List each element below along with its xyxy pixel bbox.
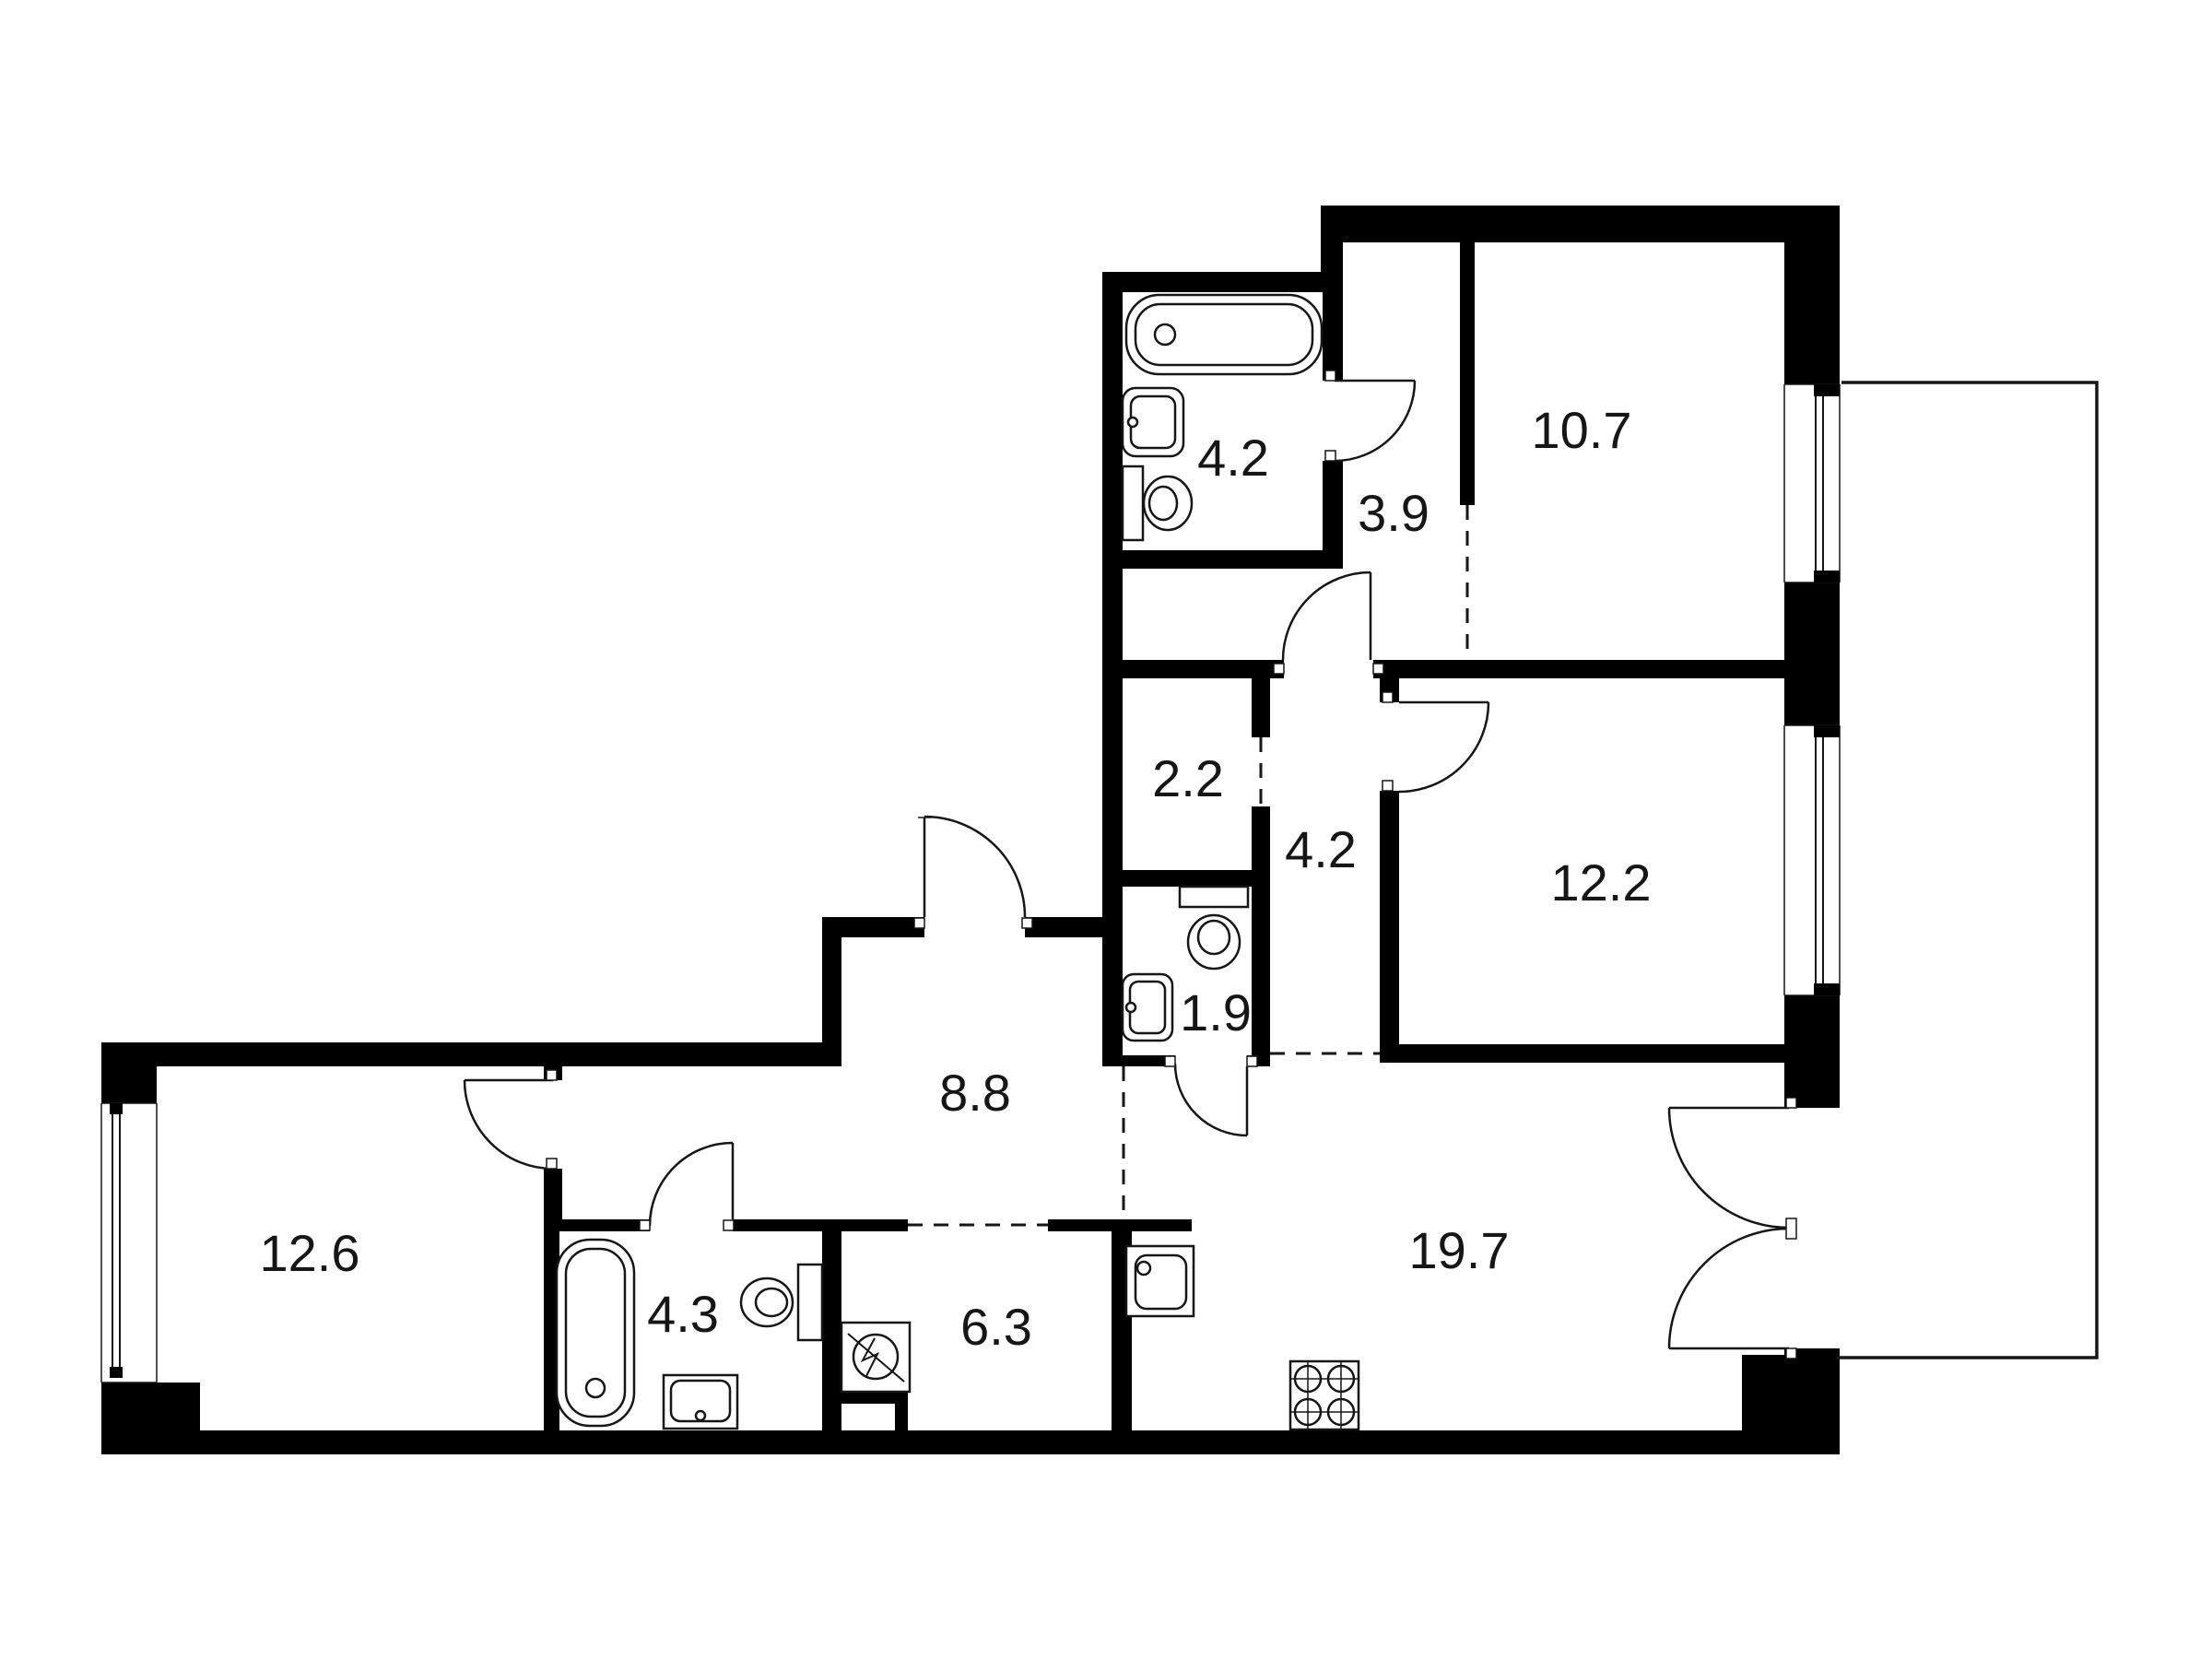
room-label-bedroom-right: 12.2	[1551, 853, 1652, 912]
washbasin-icon	[1123, 974, 1172, 1041]
wall	[1321, 206, 1840, 242]
wall	[841, 1219, 908, 1231]
washbasin-icon	[664, 1375, 737, 1429]
wall	[101, 1042, 157, 1103]
floor-plan-drawing: 4.2 3.9 10.7 2.2 4.2 12.2 1.9 8.8 12.6 4…	[0, 0, 2212, 1659]
balcony-outline	[1836, 382, 2097, 1358]
door-arc	[1399, 702, 1488, 792]
room-label-hall: 8.8	[939, 1064, 1011, 1122]
wall	[1252, 806, 1270, 1055]
wall	[544, 1169, 562, 1222]
wall	[822, 1219, 841, 1430]
wall	[1252, 678, 1270, 737]
wall	[101, 1042, 841, 1066]
window-cap	[1814, 725, 1840, 737]
room-label-utility: 6.3	[960, 1298, 1032, 1356]
room-label-bathroom-bottom: 4.3	[647, 1285, 719, 1343]
wall	[1460, 242, 1475, 505]
window-bedroom-top	[1783, 384, 1841, 582]
room-label-bedroom-top: 10.7	[1532, 401, 1632, 459]
entrance-door	[918, 817, 1025, 917]
wall	[1048, 1219, 1192, 1231]
kitchen-sink-icon	[1126, 1246, 1194, 1316]
room-label-storage: 2.2	[1152, 749, 1224, 807]
wall	[1373, 660, 1784, 678]
wall	[1380, 791, 1399, 1044]
room-labels: 4.2 3.9 10.7 2.2 4.2 12.2 1.9 8.8 12.6 4…	[260, 401, 1652, 1356]
wall	[1123, 870, 1252, 887]
room-label-wc: 1.9	[1180, 983, 1252, 1041]
walls	[101, 206, 1840, 1454]
door-arc	[1175, 1064, 1247, 1135]
toilet-icon	[741, 1265, 822, 1340]
wall	[1784, 582, 1840, 725]
toilet-icon	[1180, 887, 1248, 969]
room-label-bathroom-top: 4.2	[1197, 429, 1269, 487]
wall	[1380, 1044, 1784, 1063]
door-arc	[465, 1080, 553, 1169]
window-cap	[110, 1103, 123, 1114]
wall	[1102, 1055, 1175, 1066]
wall	[841, 1392, 908, 1404]
door-arc	[1335, 381, 1415, 461]
toilet-icon	[1123, 466, 1192, 540]
wall	[1025, 917, 1123, 937]
room-label-bedroom-left: 12.6	[260, 1224, 360, 1282]
room-label-hallway-top: 3.9	[1358, 484, 1430, 542]
door-arc	[1283, 572, 1371, 660]
wall	[1784, 206, 1840, 384]
door-arc	[650, 1143, 733, 1226]
wall	[1784, 995, 1840, 1108]
wall	[1102, 272, 1343, 292]
double-balcony-door	[1669, 1108, 1789, 1348]
wall	[1123, 550, 1343, 569]
window-cap	[1814, 384, 1840, 396]
window-cap	[1814, 983, 1840, 995]
washbasin-icon	[1123, 388, 1183, 456]
wall	[1323, 292, 1343, 381]
room-label-kitchen-living: 19.7	[1409, 1221, 1510, 1279]
window-cap	[1814, 571, 1840, 582]
wall	[895, 1404, 908, 1430]
window-bedroom-right	[1783, 725, 1841, 995]
wall	[544, 1219, 650, 1231]
window-cap	[110, 1367, 123, 1378]
floor-plan: 4.2 3.9 10.7 2.2 4.2 12.2 1.9 8.8 12.6 4…	[0, 0, 2212, 1659]
window-left	[100, 1103, 159, 1382]
wall	[101, 1430, 1840, 1454]
room-label-corridor: 4.2	[1285, 820, 1357, 878]
wall	[733, 1219, 822, 1231]
wall	[1323, 461, 1343, 550]
bathtub-icon	[1126, 295, 1322, 374]
electrical-panel-icon	[841, 1323, 910, 1392]
stove-icon	[1290, 1361, 1359, 1430]
bathtub-icon	[557, 1240, 634, 1426]
wall	[1102, 660, 1284, 678]
